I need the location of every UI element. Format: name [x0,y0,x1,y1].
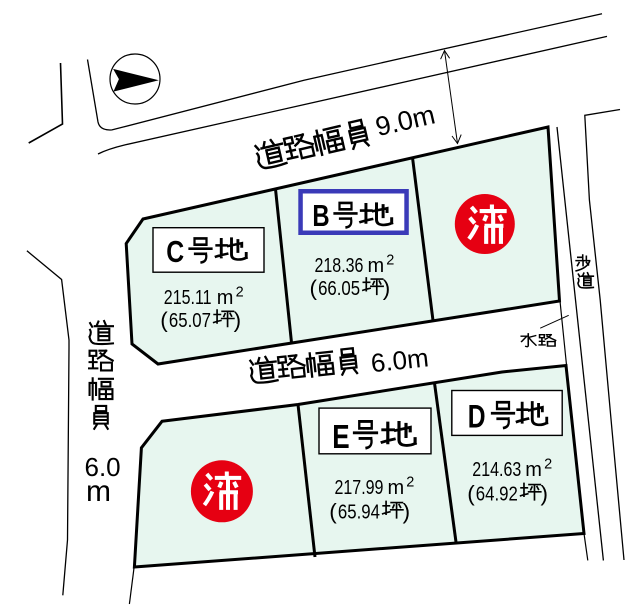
svg-text:64.92: 64.92 [476,482,518,505]
svg-text:m: m [86,475,111,508]
svg-text:2: 2 [544,457,552,473]
svg-text:65.07: 65.07 [169,309,211,332]
svg-text:6.0m: 6.0m [369,342,430,378]
svg-text:C: C [166,234,184,268]
svg-text:65.94: 65.94 [338,500,380,523]
svg-text:): ) [403,499,411,524]
svg-text:2: 2 [236,285,244,301]
svg-text:): ) [541,481,549,506]
svg-text:m: m [525,459,542,481]
svg-text:66.05: 66.05 [318,276,360,299]
svg-text:E: E [332,419,349,456]
svg-text:m: m [368,255,385,277]
svg-text:): ) [234,308,242,333]
svg-text:m: m [388,477,405,499]
svg-text:(: ( [329,499,337,524]
svg-text:214.63: 214.63 [472,458,521,480]
svg-text:(: ( [160,308,168,333]
svg-text:m: m [217,287,234,309]
svg-text:): ) [383,275,391,300]
svg-text:B: B [312,198,329,233]
svg-text:218.36: 218.36 [315,254,364,276]
svg-text:(: ( [310,275,318,300]
svg-text:2: 2 [386,253,394,269]
svg-text:(: ( [467,481,475,506]
svg-text:217.99: 217.99 [335,476,384,498]
svg-text:2: 2 [406,475,414,491]
svg-text:D: D [468,399,486,435]
svg-text:215.11: 215.11 [164,286,212,308]
